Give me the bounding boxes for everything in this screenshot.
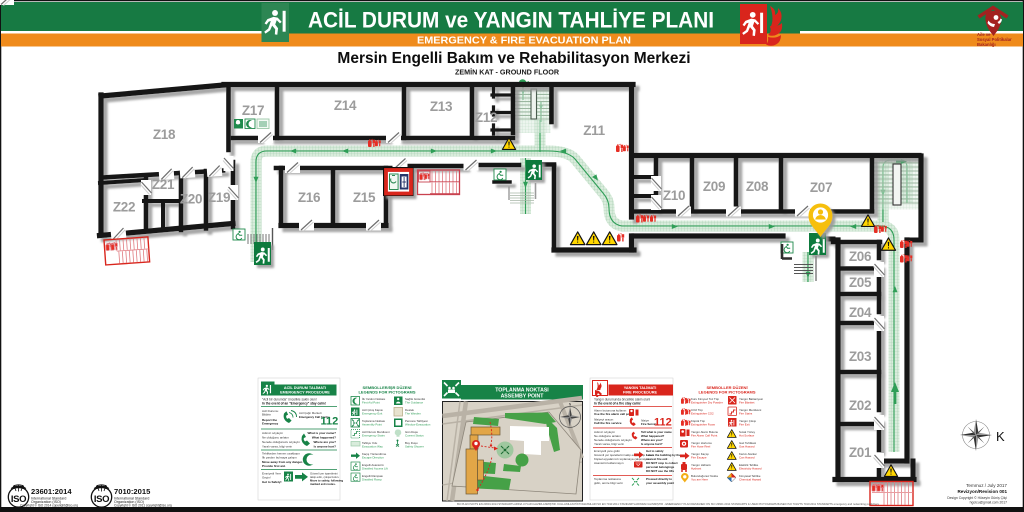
- svg-text:Provide first aid.: Provide first aid.: [262, 464, 286, 468]
- svg-text:ZEMİN KAT - GROUND FLOOR: ZEMİN KAT - GROUND FLOOR: [455, 68, 560, 77]
- svg-text:Get to Safety!: Get to Safety!: [262, 480, 282, 484]
- svg-text:Revizyon/Revision 001: Revizyon/Revision 001: [957, 489, 1007, 494]
- svg-text:Z17: Z17: [242, 103, 264, 118]
- svg-text:Z08: Z08: [746, 179, 769, 194]
- svg-text:Extinguisher Dry Powder: Extinguisher Dry Powder: [691, 401, 723, 405]
- svg-text:Chemical Hazard: Chemical Hazard: [739, 478, 762, 482]
- svg-text:Adınızı söyleyin: Adınızı söyleyin: [262, 431, 283, 435]
- svg-text:Fire Alarm Call Point: Fire Alarm Call Point: [691, 434, 718, 438]
- svg-text:K: K: [996, 429, 1005, 444]
- svg-text:Z18: Z18: [153, 127, 176, 142]
- svg-text:Nerede olduğunuzu söyleyin: Nerede olduğunuzu söyleyin: [262, 440, 300, 444]
- svg-text:Asansörü kullanmayın: Asansörü kullanmayın: [594, 461, 624, 465]
- svg-text:Z20: Z20: [180, 192, 202, 207]
- svg-text:Z01: Z01: [849, 445, 872, 460]
- svg-text:112: 112: [654, 417, 672, 429]
- svg-text:Z14: Z14: [334, 98, 357, 113]
- svg-text:Mersin Engelli Bakım ve Rehabi: Mersin Engelli Bakım ve Rehabilitasyon M…: [337, 50, 690, 67]
- svg-text:Emergency: Emergency: [262, 422, 279, 426]
- svg-text:You are Here: You are Here: [691, 478, 708, 482]
- svg-text:Disabled Access Lift: Disabled Access Lift: [362, 467, 388, 471]
- svg-text:Z21: Z21: [152, 177, 175, 192]
- svg-text:Z07: Z07: [810, 180, 832, 195]
- svg-text:EMERGENCY & FIRE EVACUATION PL: EMERGENCY & FIRE EVACUATION PLAN: [417, 36, 631, 47]
- svg-text:Hot Surface: Hot Surface: [739, 434, 755, 438]
- svg-text:Design Copyright © Hüseyin Gün: Design Copyright © Hüseyin Güniş Çilçi: [947, 496, 1007, 500]
- svg-text:Z19: Z19: [208, 190, 230, 205]
- svg-text:Is anyone hurt?: Is anyone hurt?: [314, 445, 337, 449]
- svg-text:Safety Shower: Safety Shower: [405, 445, 424, 449]
- svg-text:hgolcu@gmail.com 2017: hgolcu@gmail.com 2017: [970, 501, 1007, 505]
- svg-text:Where are you?: Where are you?: [313, 440, 336, 444]
- svg-text:Z05: Z05: [849, 275, 872, 290]
- svg-text:What is your name?: What is your name?: [307, 431, 336, 435]
- svg-text:Z13: Z13: [430, 99, 453, 114]
- svg-text:Temmuz / July 2017: Temmuz / July 2017: [966, 483, 1007, 488]
- svg-text:Geçin!: Geçin!: [262, 476, 271, 480]
- svg-text:Fire Blanket: Fire Blanket: [739, 401, 755, 405]
- svg-text:Bildirin: Bildirin: [262, 413, 271, 417]
- svg-text:Z10: Z10: [663, 188, 685, 203]
- svg-text:İlk yardım bulmaya çalışın: İlk yardım bulmaya çalışın: [262, 455, 297, 460]
- svg-text:Z16: Z16: [298, 190, 321, 205]
- svg-text:Z12: Z12: [475, 110, 497, 125]
- svg-text:ACİL DURUM TALİMATI: ACİL DURUM TALİMATI: [284, 386, 326, 390]
- svg-text:Escape Direction: Escape Direction: [362, 456, 384, 460]
- svg-text:Ne olduğunu anlatın: Ne olduğunu anlatın: [262, 436, 289, 440]
- svg-text:23601:2014: 23601:2014: [31, 487, 72, 496]
- svg-text:Window Evacuation: Window Evacuation: [405, 423, 431, 427]
- svg-text:What happened?: What happened?: [312, 436, 336, 440]
- svg-text:Z15: Z15: [353, 190, 376, 205]
- svg-text:your assembly point: your assembly point: [646, 481, 674, 485]
- svg-text:Extinguisher CO2: Extinguisher CO2: [691, 412, 714, 416]
- svg-text:Z09: Z09: [703, 179, 725, 194]
- svg-text:gidin, amire bilgi verin: gidin, amire bilgi verin: [594, 481, 623, 485]
- svg-text:Gas Hazard: Gas Hazard: [739, 445, 755, 449]
- svg-text:ISO: ISO: [94, 494, 109, 505]
- svg-text:Z22: Z22: [113, 200, 135, 215]
- svg-text:Extinguisher Foam: Extinguisher Foam: [691, 423, 716, 427]
- svg-text:Z04: Z04: [849, 305, 872, 320]
- svg-text:112: 112: [321, 416, 339, 428]
- svg-text:Fire Escape: Fire Escape: [691, 456, 707, 460]
- svg-text:Bakanlığı: Bakanlığı: [977, 42, 996, 47]
- svg-text:Z02: Z02: [849, 398, 871, 413]
- svg-text:YANGIN TALİMATI: YANGIN TALİMATI: [624, 386, 657, 390]
- svg-text:LEGENDS FOR PICTOGRAMS: LEGENDS FOR PICTOGRAMS: [698, 390, 755, 395]
- svg-text:Copyright © ISO 2014 copyright: Copyright © ISO 2014 copyright@iso.org: [20, 504, 78, 508]
- svg-text:Fire Exit: Fire Exit: [739, 423, 750, 427]
- svg-text:In the event of a fire stay ca: In the event of a fire stay calm!: [594, 402, 641, 406]
- svg-text:Emergency Exit: Emergency Exit: [362, 412, 382, 416]
- svg-text:EMERGENCY PROCEDURE: EMERGENCY PROCEDURE: [280, 391, 330, 395]
- svg-text:Copyright © ISO 2011 copyright: Copyright © ISO 2011 copyright@iso.org: [114, 504, 172, 508]
- svg-text:ASSEMBY POINT: ASSEMBY POINT: [501, 394, 545, 400]
- svg-text:Fire Stairs: Fire Stairs: [739, 412, 753, 416]
- svg-text:Current Status: Current Status: [405, 434, 424, 438]
- svg-text:Electricity Hazard: Electricity Hazard: [739, 467, 762, 471]
- svg-text:Z06: Z06: [849, 249, 872, 264]
- svg-text:Z03: Z03: [849, 349, 872, 364]
- svg-text:Evacuation Way: Evacuation Way: [362, 445, 383, 449]
- svg-text:ACİL DURUM ve YANGIN TAHLİYE P: ACİL DURUM ve YANGIN TAHLİYE PLANI: [308, 8, 714, 33]
- svg-text:LEGENDS FOR PICTOGRAMS: LEGENDS FOR PICTOGRAMS: [358, 390, 415, 395]
- svg-text:DO NOT use the lifts: DO NOT use the lifts: [646, 469, 674, 473]
- svg-text:Yaralı varsa, bilgi verin: Yaralı varsa, bilgi verin: [262, 445, 292, 449]
- svg-text:The Warden: The Warden: [405, 412, 421, 416]
- svg-text:Emergency Stairs: Emergency Stairs: [362, 434, 385, 438]
- svg-text:Hydrant: Hydrant: [691, 467, 701, 471]
- svg-text:Fire Hose Reel: Fire Hose Reel: [691, 445, 711, 449]
- svg-text:Assembly Point: Assembly Point: [362, 423, 382, 427]
- svg-text:First Aid Point: First Aid Point: [362, 401, 380, 405]
- svg-text:marked exit routes.: marked exit routes.: [310, 482, 336, 486]
- svg-text:Is anyone hurt?: Is anyone hurt?: [641, 442, 663, 446]
- svg-text:Call the fire service: Call the fire service: [594, 421, 622, 425]
- svg-text:7010:2015: 7010:2015: [114, 487, 151, 496]
- svg-text:In the event of an "Emergency": In the event of an "Emergency" stay calm…: [262, 402, 326, 406]
- svg-text:Yaralı varsa, bilgi verin: Yaralı varsa, bilgi verin: [594, 442, 624, 446]
- svg-text:Use the fire alarm call point: Use the fire alarm call point: [594, 412, 633, 416]
- svg-text:Can Hazard: Can Hazard: [739, 456, 755, 460]
- svg-text:The Guidance: The Guidance: [405, 401, 424, 405]
- svg-text:Z11: Z11: [583, 123, 605, 138]
- svg-text:Disabled Ramp: Disabled Ramp: [362, 478, 382, 482]
- svg-text:FIRE PROCEDURE: FIRE PROCEDURE: [623, 391, 657, 395]
